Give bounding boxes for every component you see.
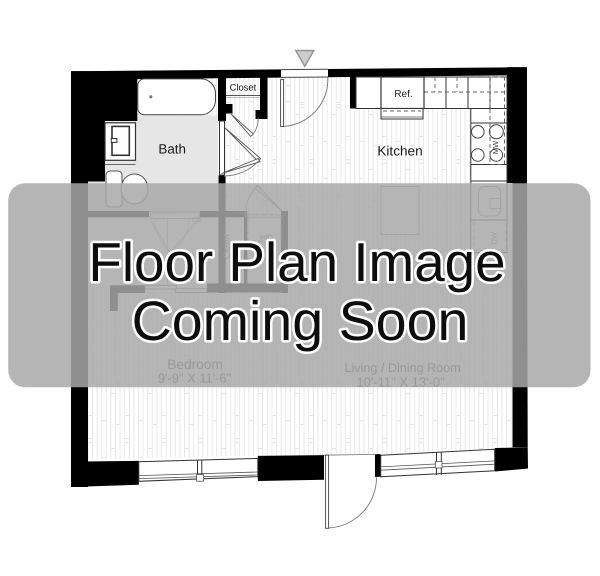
svg-text:Kitchen: Kitchen (377, 144, 422, 159)
svg-text:Floor Plan Image: Floor Plan Image (88, 231, 505, 293)
svg-text:Coming Soon: Coming Soon (132, 290, 469, 352)
svg-text:Closet: Closet (230, 82, 257, 93)
svg-text:MW: MW (491, 140, 500, 154)
svg-text:Ref.: Ref. (394, 89, 412, 100)
svg-text:Bath: Bath (158, 141, 186, 156)
